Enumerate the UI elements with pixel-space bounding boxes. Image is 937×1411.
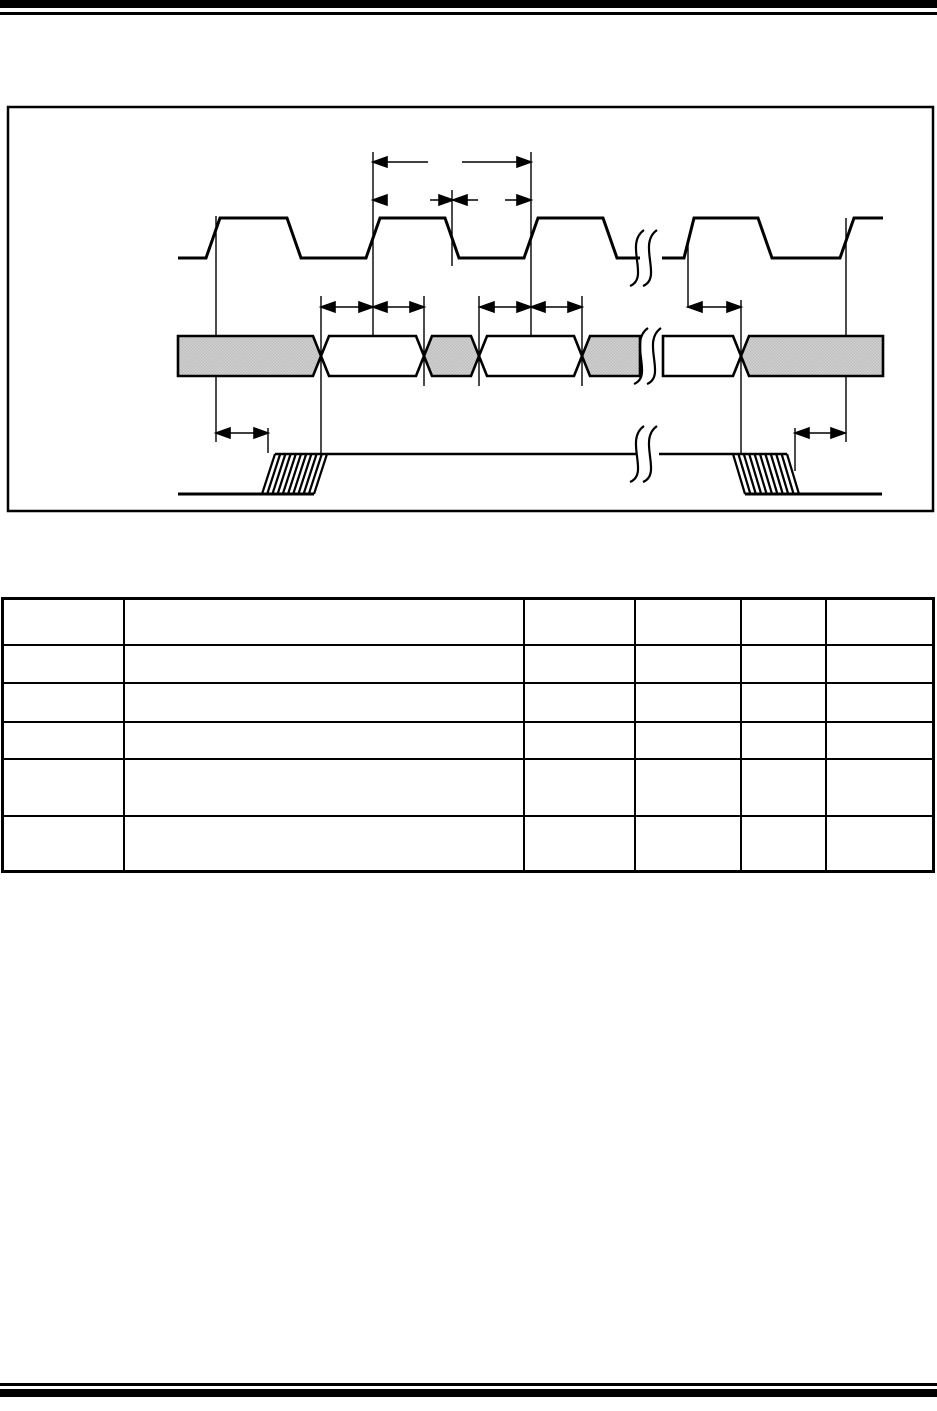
table-cell: [635, 683, 741, 722]
table-cell: [524, 645, 635, 683]
table-cell: [635, 816, 741, 872]
table-row: [3, 683, 934, 722]
table-row: [3, 759, 934, 816]
bus-segment-shaded: [741, 336, 883, 376]
table-cell: [3, 683, 124, 722]
bus-segment-shaded: [582, 336, 640, 376]
page-bottom-rule-thick: [0, 1389, 937, 1397]
timing-diagram-figure: [0, 0, 937, 560]
table-cell: [524, 722, 635, 759]
table-cell: [635, 645, 741, 683]
table-header-cell: [3, 599, 124, 645]
bus-segment-shaded: [424, 336, 479, 376]
table-cell: [3, 722, 124, 759]
table-cell: [524, 759, 635, 816]
table-cell: [124, 816, 524, 872]
table-cell: [3, 645, 124, 683]
table-cell: [124, 645, 524, 683]
table-header-row: [3, 599, 934, 645]
table-cell: [524, 816, 635, 872]
bus-segment-valid: [479, 336, 582, 376]
hatched-rise-edge: [262, 454, 327, 494]
table-cell: [826, 816, 934, 872]
table-cell: [741, 759, 826, 816]
table-cell: [741, 645, 826, 683]
table-cell: [124, 759, 524, 816]
bus-segment-valid: [321, 336, 424, 376]
table-cell: [741, 722, 826, 759]
table-cell: [524, 683, 635, 722]
table-cell: [635, 759, 741, 816]
table-cell: [826, 722, 934, 759]
table-cell: [741, 816, 826, 872]
table-cell: [826, 645, 934, 683]
hatched-fall-edge: [733, 454, 799, 494]
spec-table: [1, 597, 935, 873]
table-cell: [3, 816, 124, 872]
table-header-cell: [635, 599, 741, 645]
enable-waveform: [178, 454, 882, 494]
table-row: [3, 645, 934, 683]
table-header-cell: [741, 599, 826, 645]
page-bottom-rule-thin: [0, 1383, 937, 1386]
data-bus-waveform: [178, 336, 883, 376]
table-cell: [826, 759, 934, 816]
table-cell: [124, 683, 524, 722]
table-cell: [3, 759, 124, 816]
table-header-cell: [826, 599, 934, 645]
table-cell: [826, 683, 934, 722]
table-header-cell: [524, 599, 635, 645]
table-header-cell: [124, 599, 524, 645]
table-cell: [635, 722, 741, 759]
bus-segment-shaded: [178, 336, 321, 376]
document-page: [0, 0, 937, 1411]
table-cell: [741, 683, 826, 722]
table-row: [3, 816, 934, 872]
bus-segment-valid: [663, 336, 741, 376]
table-cell: [124, 722, 524, 759]
figure-border: [8, 107, 933, 511]
table-row: [3, 722, 934, 759]
